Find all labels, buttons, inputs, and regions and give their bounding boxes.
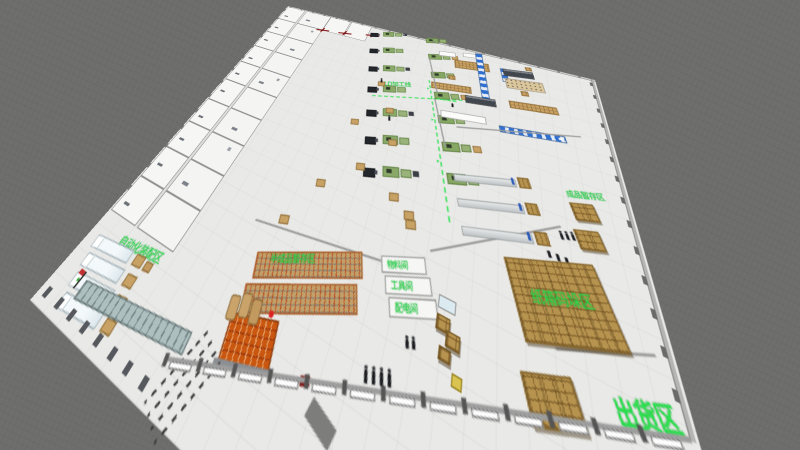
storage-rack-dark[interactable] (465, 95, 497, 107)
person-figure[interactable] (570, 234, 576, 241)
machine-unit (395, 33, 402, 37)
viewport-3d[interactable]: LD加工线 ► (0, 0, 800, 450)
person-figure[interactable] (565, 233, 571, 240)
carton-box-stack[interactable] (533, 231, 551, 246)
cnc-machine-green[interactable] (426, 38, 455, 43)
person-head (388, 115, 390, 117)
office-cabinet (227, 147, 232, 152)
office-desk (220, 89, 225, 92)
wall-pilaster (420, 391, 426, 408)
factory-floor[interactable]: LD加工线 ► (30, 6, 800, 450)
driveway-strip (304, 397, 336, 450)
agv-arrow-icon (427, 87, 429, 89)
room-label: 配电间 (395, 303, 438, 317)
wall-pilaster (461, 397, 468, 414)
office-desk (274, 27, 278, 29)
utility-room: 配电间 (388, 297, 438, 320)
office-desk (181, 181, 189, 187)
carton-box-stack[interactable] (524, 203, 540, 216)
work-table (441, 110, 487, 125)
packing-conveyor-line[interactable] (453, 174, 517, 188)
machine-unit (461, 144, 472, 152)
office-desk (290, 48, 295, 51)
wall-pilaster (342, 379, 347, 395)
lathe-chuck (376, 88, 378, 91)
office-desk (306, 19, 311, 21)
person-figure[interactable] (380, 371, 383, 386)
office-desk (248, 57, 253, 59)
machine-window (386, 33, 389, 35)
person-head (412, 335, 415, 339)
wall-pilaster (465, 49, 467, 51)
pallet-small (388, 139, 396, 146)
pallet-small (356, 163, 365, 171)
wall-pilaster (304, 374, 310, 390)
pallet-small (404, 210, 414, 220)
office-desk (235, 72, 240, 75)
small-box (520, 91, 529, 97)
office-desk (258, 81, 264, 84)
worker-figure[interactable] (451, 103, 453, 107)
person-figure[interactable] (364, 368, 368, 383)
fan-hub (343, 32, 346, 34)
people-group[interactable] (388, 116, 391, 122)
lathe-chuck (377, 50, 379, 52)
agv-arrow-icon (431, 118, 433, 121)
pallet-small (316, 179, 326, 188)
carton-box-stack[interactable] (517, 177, 532, 189)
person-figure[interactable] (372, 370, 376, 385)
cnc-machine-green[interactable] (383, 65, 412, 72)
wall-pilaster (138, 375, 150, 393)
person-head (405, 335, 408, 339)
pallet-row[interactable] (509, 101, 560, 116)
office-block[interactable] (109, 7, 331, 255)
lathe-chuck (376, 111, 379, 114)
machine-window (386, 67, 390, 69)
agv-arrow-icon (437, 160, 440, 163)
machine-aux-dark (413, 171, 420, 177)
wall-pilaster (433, 41, 435, 43)
machine-unit (396, 49, 404, 53)
wall-pilaster (518, 61, 521, 63)
pallet-small[interactable] (121, 273, 138, 290)
utility-room: 工具间 (385, 275, 433, 296)
wall-pilaster (500, 57, 502, 59)
machine-aux-dark (405, 67, 410, 70)
wall-pilaster (92, 333, 104, 348)
person-head (381, 78, 382, 79)
office-desk (198, 115, 204, 118)
machine-unit (397, 87, 406, 93)
person-figure[interactable] (381, 79, 383, 82)
utility-room: 物料间 (381, 255, 427, 275)
carton-stock-block[interactable]: 纸箱码垛区 (504, 257, 632, 355)
machine-unit (398, 110, 407, 116)
person-head (388, 368, 391, 373)
machine-unit (401, 169, 412, 178)
pallet-small (405, 219, 416, 230)
small-box (448, 75, 455, 80)
cnc-machine-green[interactable] (383, 48, 411, 54)
person-figure[interactable] (388, 372, 392, 387)
pallet-small (278, 214, 290, 224)
pallet-small (389, 192, 399, 201)
bed-head (81, 254, 94, 267)
person-head (372, 365, 375, 370)
zone-label-carton: 纸箱码垛区 (529, 288, 597, 312)
machine-window (386, 169, 391, 173)
person-head (380, 367, 383, 372)
packing-conveyor-line[interactable] (457, 198, 526, 214)
person-figure[interactable] (412, 340, 416, 350)
bed-head (92, 236, 104, 248)
worker-figure[interactable] (547, 250, 552, 258)
lathe-chuck (378, 34, 380, 36)
beacon-light (268, 310, 274, 318)
agv-path-stub (437, 98, 456, 102)
pallet-small (386, 108, 394, 114)
people-group[interactable] (405, 339, 423, 355)
people-group[interactable] (381, 79, 383, 83)
packing-conveyor-line[interactable] (461, 226, 534, 245)
zone-label-buffer: 半成品暂存区 (269, 255, 315, 266)
wall-window (168, 360, 193, 372)
work-table (439, 51, 456, 58)
office-desk (123, 201, 130, 207)
lathe-chuck (377, 68, 379, 70)
machine-unit (399, 137, 409, 145)
pallet-small (351, 119, 359, 125)
wall-pilaster (537, 66, 540, 68)
pallet-small (472, 146, 482, 153)
machine-aux-dark (408, 112, 414, 116)
flag-ball (76, 277, 80, 282)
wall-pilaster (417, 37, 419, 39)
office-cabinet (276, 78, 280, 81)
staging-box-yellow[interactable] (451, 373, 463, 394)
machine-window (446, 144, 452, 148)
room-label: 工具间 (391, 281, 432, 294)
office-cabinet (311, 30, 314, 32)
person-figure[interactable] (405, 339, 409, 349)
conveyor-blue-vertical[interactable] (475, 53, 491, 103)
office-desk (284, 15, 288, 17)
cnc-machine-green[interactable] (383, 166, 423, 179)
office-desk (264, 39, 268, 41)
machine-unit (396, 67, 404, 72)
room-label: 物料间 (387, 261, 426, 273)
machine-unit (439, 39, 447, 43)
wall-pilaster (106, 346, 118, 362)
cnc-machine-green[interactable] (383, 85, 414, 93)
office-corridor (135, 11, 307, 228)
wall-pilaster (449, 45, 451, 47)
person-head (365, 364, 368, 369)
machine-window (432, 55, 436, 57)
person-figure[interactable] (388, 116, 390, 120)
wall-pilaster (482, 53, 484, 55)
wall-pilaster (122, 360, 134, 377)
fan-hub (321, 29, 324, 31)
machine-window (386, 87, 390, 90)
lathe-chuck (374, 170, 377, 174)
office-desk (231, 127, 238, 132)
lathe-chuck (375, 138, 378, 142)
office-desk (157, 162, 163, 167)
packing-lines-zone[interactable] (453, 169, 656, 271)
office-desk (179, 137, 185, 141)
machine-window (386, 49, 390, 51)
arrow-icon: ► (558, 135, 565, 142)
worker-figure[interactable] (555, 254, 560, 262)
cnc-machine-green[interactable] (383, 32, 409, 37)
